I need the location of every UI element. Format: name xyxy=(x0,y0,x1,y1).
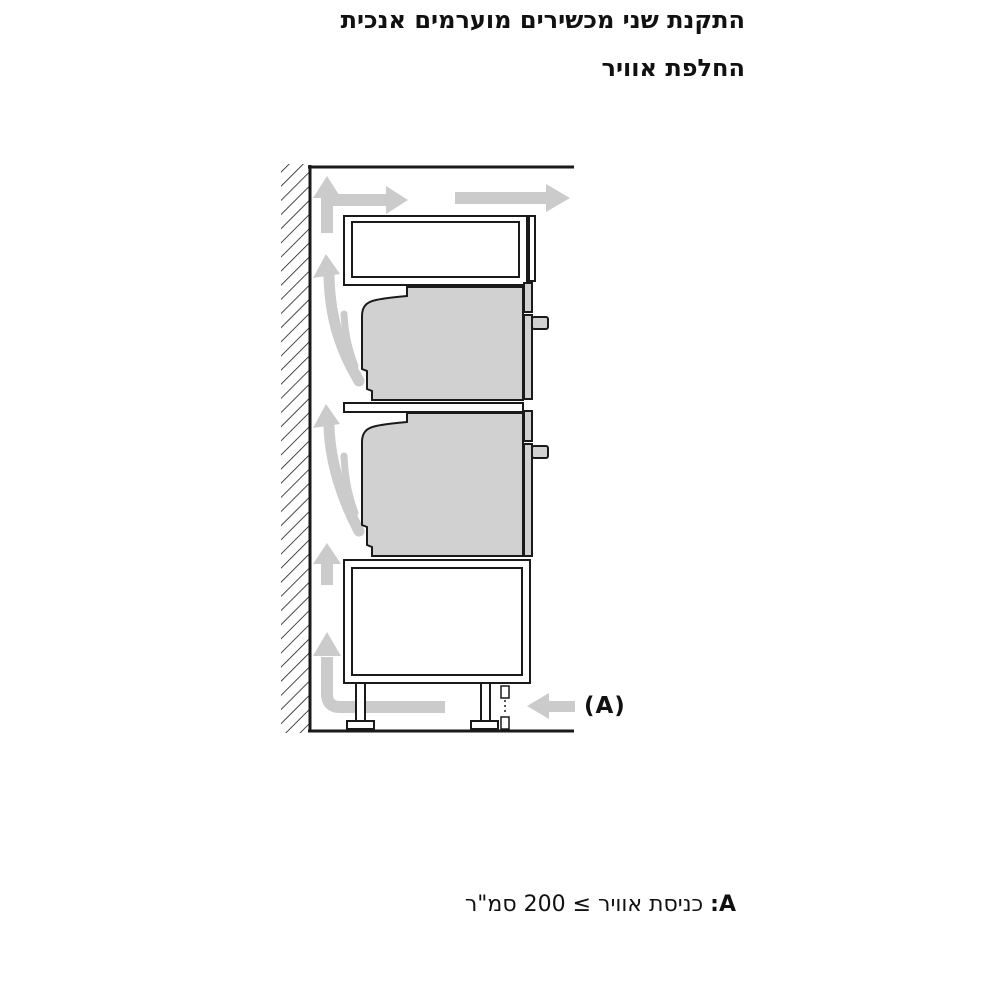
air-inlet-arrow xyxy=(527,693,575,719)
lower-oven-body xyxy=(362,413,523,556)
installation-diagram xyxy=(0,0,1000,1000)
top-cabinet-side-strip xyxy=(529,216,535,281)
air-inlet-label: (A) xyxy=(584,693,626,719)
air-inlet-vent xyxy=(501,686,509,729)
top-cabinet xyxy=(344,216,535,285)
page: התקנת שני מכשירים מוערמים אנכית החלפת או… xyxy=(0,0,1000,1000)
airflow-curved-arrow-lower xyxy=(313,404,359,531)
wall-hatching xyxy=(281,164,309,733)
upper-oven xyxy=(362,283,548,400)
footnote-marker: A: xyxy=(710,892,736,917)
airflow-up-arrow-mid xyxy=(313,543,341,585)
cabinet-foot-right xyxy=(471,721,498,729)
middle-shelf xyxy=(344,403,523,412)
wall xyxy=(281,164,310,733)
upper-oven-door xyxy=(524,315,532,399)
lower-oven xyxy=(362,411,548,556)
lower-oven-control-panel xyxy=(524,411,532,441)
upper-oven-handle xyxy=(532,317,548,329)
upper-oven-control-panel xyxy=(524,283,532,312)
upper-oven-body xyxy=(362,287,523,400)
airflow-right-arrow-2 xyxy=(455,184,570,212)
cabinet-foot-left xyxy=(347,721,374,729)
footnote-text: כניסת אוויר ≥ 200 סמ"ר xyxy=(465,892,710,917)
cabinet-leg-right xyxy=(481,683,490,721)
lower-oven-handle xyxy=(532,446,548,458)
lower-oven-door xyxy=(524,444,532,556)
footnote: A: כניסת אוויר ≥ 200 סמ"ר xyxy=(465,892,736,918)
cabinet-leg-left xyxy=(356,683,365,721)
